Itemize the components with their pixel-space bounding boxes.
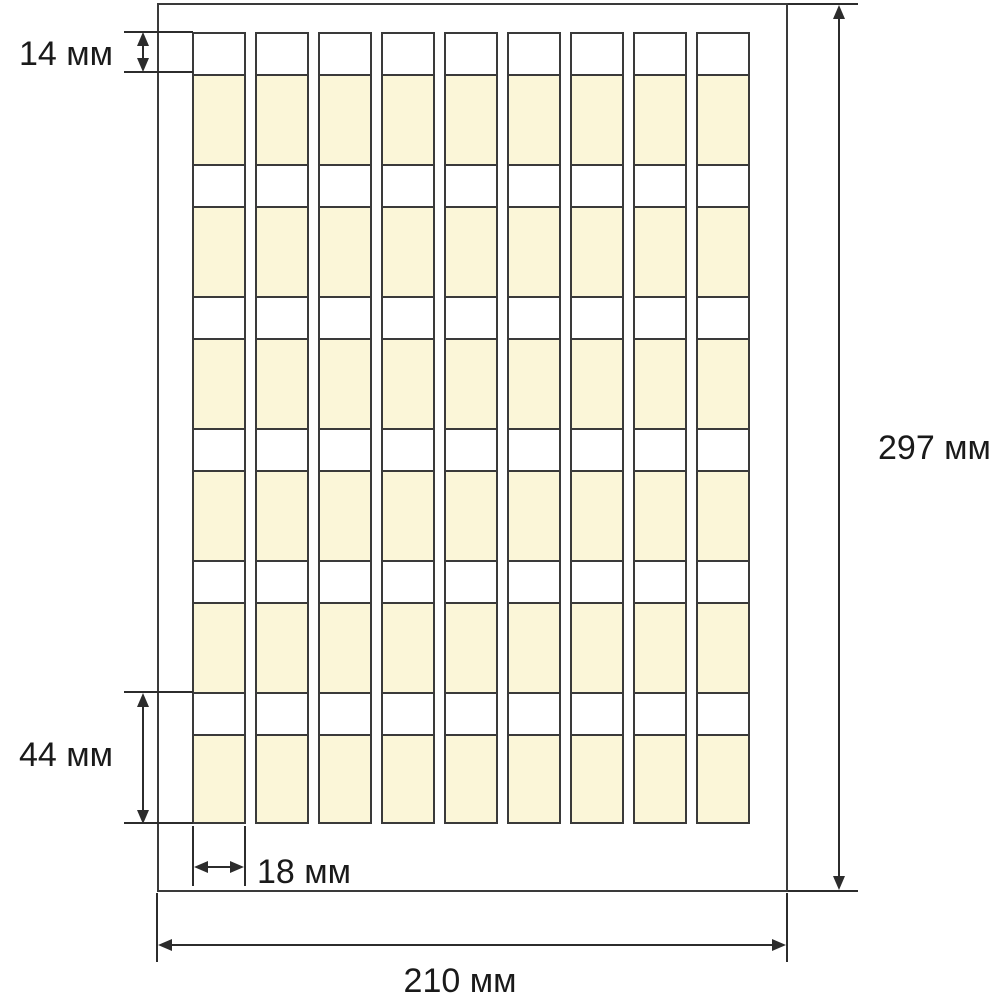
label-strip [509, 562, 559, 604]
label-body [572, 340, 622, 430]
label-cell [383, 166, 433, 298]
arrow-up-icon [137, 32, 149, 46]
dim-14mm-tick-bottom [124, 71, 193, 73]
label-body [509, 76, 559, 166]
label-cell [635, 562, 685, 694]
label-cell [320, 430, 370, 562]
label-cell [383, 430, 433, 562]
label-cell [446, 430, 496, 562]
label-cell [194, 166, 244, 298]
label-body [698, 604, 748, 694]
label-body [698, 76, 748, 166]
label-body [257, 208, 307, 298]
dim-14mm-tick-top [124, 31, 193, 33]
arrow-up-icon [833, 5, 845, 19]
label-strip [572, 166, 622, 208]
label-body [194, 76, 244, 166]
label-cell [509, 34, 559, 166]
dim-44mm-tick-bottom [124, 822, 193, 824]
label-strip [698, 694, 748, 736]
label-strip [446, 430, 496, 472]
label-strip [194, 694, 244, 736]
label-cell [257, 298, 307, 430]
label-strip [446, 298, 496, 340]
label-body [572, 472, 622, 562]
dim-297mm-line [838, 10, 840, 885]
dim-44mm-line [142, 697, 144, 819]
label-body [698, 208, 748, 298]
label-cell [572, 562, 622, 694]
label-body [383, 472, 433, 562]
label-cell [509, 562, 559, 694]
label-cell [257, 430, 307, 562]
label-body [509, 340, 559, 430]
label-strip [509, 298, 559, 340]
arrow-up-icon [137, 693, 149, 707]
dim-44mm-label: 44 мм [19, 738, 113, 772]
label-body [572, 76, 622, 166]
label-body [383, 208, 433, 298]
label-body [698, 340, 748, 430]
label-strip [257, 430, 307, 472]
label-cell [698, 694, 748, 824]
label-strip [698, 298, 748, 340]
label-cell [446, 298, 496, 430]
dim-210mm-line [166, 944, 778, 946]
label-cell [383, 694, 433, 824]
arrow-right-icon [230, 861, 244, 873]
label-strip [383, 430, 433, 472]
label-cell [509, 298, 559, 430]
label-column [696, 32, 750, 824]
label-cell [320, 298, 370, 430]
label-strip [635, 562, 685, 604]
label-body [320, 208, 370, 298]
label-body [446, 472, 496, 562]
label-body [446, 604, 496, 694]
label-cell [383, 562, 433, 694]
label-body [509, 208, 559, 298]
dim-18mm-ext-left [192, 826, 194, 886]
label-body [383, 736, 433, 824]
label-cell [446, 562, 496, 694]
label-cell [509, 694, 559, 824]
label-strip [572, 694, 622, 736]
dim-210mm-label: 210 мм [360, 964, 560, 998]
label-cell [635, 34, 685, 166]
label-body [257, 736, 307, 824]
label-column [192, 32, 246, 824]
dim-44mm-tick-top [124, 691, 193, 693]
label-cell [698, 34, 748, 166]
label-cell [446, 166, 496, 298]
label-strip [509, 34, 559, 76]
label-body [446, 208, 496, 298]
label-body [446, 76, 496, 166]
label-column [381, 32, 435, 824]
label-cell [698, 430, 748, 562]
label-cell [257, 562, 307, 694]
arrow-right-icon [772, 939, 786, 951]
label-body [635, 208, 685, 298]
label-body [635, 472, 685, 562]
label-strip [383, 298, 433, 340]
label-sheet-diagram: 14 мм 44 мм 18 мм 297 мм 210 мм [0, 0, 1000, 1000]
arrow-left-icon [194, 861, 208, 873]
dim-297mm-ext-bottom [788, 890, 858, 892]
label-body [257, 472, 307, 562]
label-strip [572, 298, 622, 340]
label-cell [635, 298, 685, 430]
label-body [257, 340, 307, 430]
label-strip [635, 34, 685, 76]
label-strip [257, 298, 307, 340]
label-cell [194, 34, 244, 166]
label-body [320, 604, 370, 694]
label-strip [509, 166, 559, 208]
label-strip [320, 694, 370, 736]
label-strip [698, 34, 748, 76]
label-strip [383, 562, 433, 604]
label-body [383, 76, 433, 166]
label-cell [698, 562, 748, 694]
arrow-down-icon [833, 876, 845, 890]
label-strip [509, 694, 559, 736]
label-body [446, 736, 496, 824]
label-cell [257, 166, 307, 298]
arrow-down-icon [137, 58, 149, 72]
label-cell [572, 34, 622, 166]
label-strip [446, 562, 496, 604]
label-strip [383, 34, 433, 76]
label-body [572, 736, 622, 824]
label-strip [320, 562, 370, 604]
label-strip [194, 298, 244, 340]
label-column [444, 32, 498, 824]
label-strip [320, 298, 370, 340]
label-cell [194, 562, 244, 694]
label-strip [635, 430, 685, 472]
label-cell [383, 298, 433, 430]
label-strip [194, 430, 244, 472]
label-strip [446, 34, 496, 76]
dim-297mm-label: 297 мм [878, 431, 991, 465]
label-body [320, 472, 370, 562]
label-cell [446, 34, 496, 166]
label-strip [635, 694, 685, 736]
label-cell [509, 166, 559, 298]
label-strip [194, 34, 244, 76]
label-body [698, 736, 748, 824]
label-strip [194, 166, 244, 208]
label-cell [194, 694, 244, 824]
dim-14mm-label: 14 мм [19, 37, 113, 71]
label-strip [257, 34, 307, 76]
label-strip [635, 298, 685, 340]
label-strip [698, 430, 748, 472]
label-body [446, 340, 496, 430]
label-cell [446, 694, 496, 824]
label-cell [572, 430, 622, 562]
label-column [507, 32, 561, 824]
arrow-left-icon [158, 939, 172, 951]
label-cell [635, 694, 685, 824]
label-strip [257, 562, 307, 604]
label-body [635, 340, 685, 430]
label-body [509, 472, 559, 562]
label-cell [194, 298, 244, 430]
label-body [572, 604, 622, 694]
label-cell [257, 694, 307, 824]
label-body [194, 604, 244, 694]
label-strip [509, 430, 559, 472]
dim-297mm-ext-top [788, 3, 858, 5]
label-strip [698, 166, 748, 208]
label-cell [698, 298, 748, 430]
label-strip [383, 694, 433, 736]
label-body [635, 736, 685, 824]
arrow-down-icon [137, 810, 149, 824]
label-body [383, 604, 433, 694]
label-strip [446, 694, 496, 736]
label-cell [320, 34, 370, 166]
label-strip [194, 562, 244, 604]
label-strip [635, 166, 685, 208]
label-body [320, 76, 370, 166]
label-body [320, 736, 370, 824]
label-cell [572, 694, 622, 824]
label-strip [383, 166, 433, 208]
label-strip [257, 166, 307, 208]
label-strip [320, 166, 370, 208]
label-strip [320, 430, 370, 472]
label-body [257, 604, 307, 694]
label-cell [320, 694, 370, 824]
label-body [383, 340, 433, 430]
label-cell [194, 430, 244, 562]
label-body [635, 76, 685, 166]
label-body [320, 340, 370, 430]
label-body [194, 736, 244, 824]
label-strip [446, 166, 496, 208]
label-column [318, 32, 372, 824]
label-body [194, 208, 244, 298]
label-strip [257, 694, 307, 736]
label-cell [320, 166, 370, 298]
label-column [255, 32, 309, 824]
label-cell [572, 166, 622, 298]
label-strip [572, 430, 622, 472]
label-strip [572, 34, 622, 76]
label-strip [572, 562, 622, 604]
label-body [572, 208, 622, 298]
label-cell [509, 430, 559, 562]
label-strip [320, 34, 370, 76]
dim-18mm-ext-right [244, 826, 246, 886]
dim-210mm-ext-right [786, 893, 788, 962]
label-column [570, 32, 624, 824]
label-strip [698, 562, 748, 604]
dim-210mm-ext-left [156, 893, 158, 962]
label-body [509, 604, 559, 694]
label-cell [635, 166, 685, 298]
label-body [194, 472, 244, 562]
label-body [257, 76, 307, 166]
label-cell [257, 34, 307, 166]
label-cell [320, 562, 370, 694]
label-grid [192, 32, 750, 824]
label-cell [635, 430, 685, 562]
label-cell [698, 166, 748, 298]
dim-18mm-label: 18 мм [257, 855, 351, 889]
label-cell [383, 34, 433, 166]
label-cell [572, 298, 622, 430]
label-body [509, 736, 559, 824]
label-body [635, 604, 685, 694]
label-body [698, 472, 748, 562]
label-column [633, 32, 687, 824]
label-body [194, 340, 244, 430]
